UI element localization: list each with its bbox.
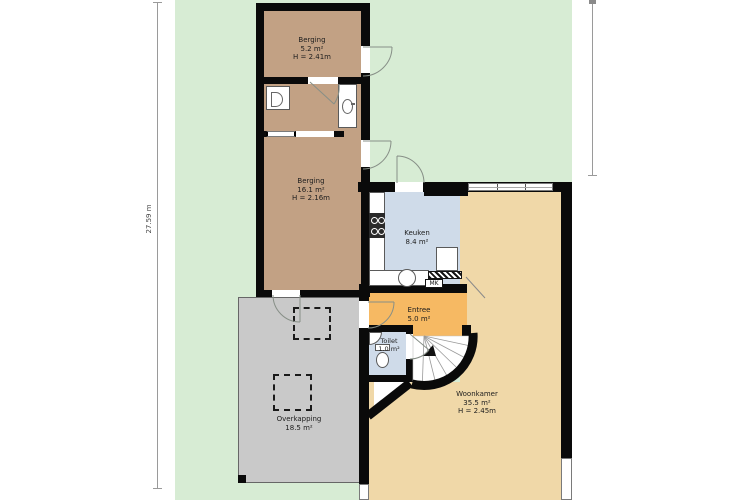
exterior-wall-right xyxy=(561,182,572,458)
dimension-line-right xyxy=(592,0,593,176)
room-label-berging-main: Berging 16.1 m² H = 2.16m xyxy=(266,177,356,203)
meter-cupboard-label: MK xyxy=(425,279,443,288)
room-area: 16.1 m² xyxy=(266,186,356,195)
canopy-skylight-icon xyxy=(293,307,331,340)
room-area: 35.5 m² xyxy=(432,399,522,408)
dimension-label-left: 27.59 m xyxy=(145,197,153,241)
dimension-cap-bottom xyxy=(153,488,162,489)
room-name: Woonkamer xyxy=(432,390,522,399)
woonkamer-floor xyxy=(460,192,561,500)
dimension-cap-right-bottom xyxy=(588,175,597,176)
door-opening xyxy=(361,140,370,167)
canopy-post-icon xyxy=(238,475,246,483)
meter-cupboard-hatch xyxy=(428,271,462,279)
room-height: H = 2.16m xyxy=(266,194,356,203)
door-opening xyxy=(361,46,370,73)
exterior-wall-block xyxy=(424,182,468,196)
door-opening xyxy=(272,290,300,297)
window-top xyxy=(468,183,553,191)
room-label-woonkamer: Woonkamer 35.5 m² H = 2.45m xyxy=(432,390,522,416)
door-opening xyxy=(308,77,338,84)
front-door-opening xyxy=(359,301,369,328)
room-name: Entree xyxy=(374,306,464,315)
room-area: 8.4 m² xyxy=(372,238,462,247)
kitchen-sink-icon xyxy=(398,269,416,287)
washbasin-icon xyxy=(266,86,290,110)
room-area: 5.0 m² xyxy=(374,315,464,324)
room-area: 18.5 m² xyxy=(254,424,344,433)
stair-wall-stub xyxy=(462,325,471,339)
floor-plan-canvas: 27.59 m xyxy=(0,0,750,500)
room-name: Berging xyxy=(267,36,357,45)
room-name: Keuken xyxy=(372,229,462,238)
room-area: 5.2 m² xyxy=(267,45,357,54)
room-label-overkapping: Overkapping 18.5 m² xyxy=(254,415,344,432)
canopy-skylight-icon xyxy=(273,374,312,411)
dimension-right-label-clipped xyxy=(589,0,596,4)
window-right xyxy=(561,458,572,500)
room-height: H = 2.45m xyxy=(432,407,522,416)
room-area: 1.0 m² xyxy=(368,346,410,354)
room-label-keuken: Keuken 8.4 m² xyxy=(372,229,462,246)
dimension-cap-top xyxy=(153,2,162,3)
passage-opening xyxy=(296,131,334,137)
sink-counter-icon xyxy=(338,84,357,128)
toilet-south-wall xyxy=(359,375,413,382)
toilet-bowl-icon xyxy=(376,352,389,368)
interior-window xyxy=(266,131,296,137)
room-label-berging-top: Berging 5.2 m² H = 2.41m xyxy=(267,36,357,62)
room-label-entree: Entree 5.0 m² xyxy=(374,306,464,323)
room-name: Overkapping xyxy=(254,415,344,424)
door-opening xyxy=(395,182,423,192)
window-left xyxy=(359,484,369,500)
dimension-line-left xyxy=(157,2,158,489)
room-height: H = 2.41m xyxy=(267,53,357,62)
room-label-toilet: Toilet 1.0 m² xyxy=(368,338,410,353)
kitchen-cabinet-icon xyxy=(436,247,458,271)
room-name: Berging xyxy=(266,177,356,186)
